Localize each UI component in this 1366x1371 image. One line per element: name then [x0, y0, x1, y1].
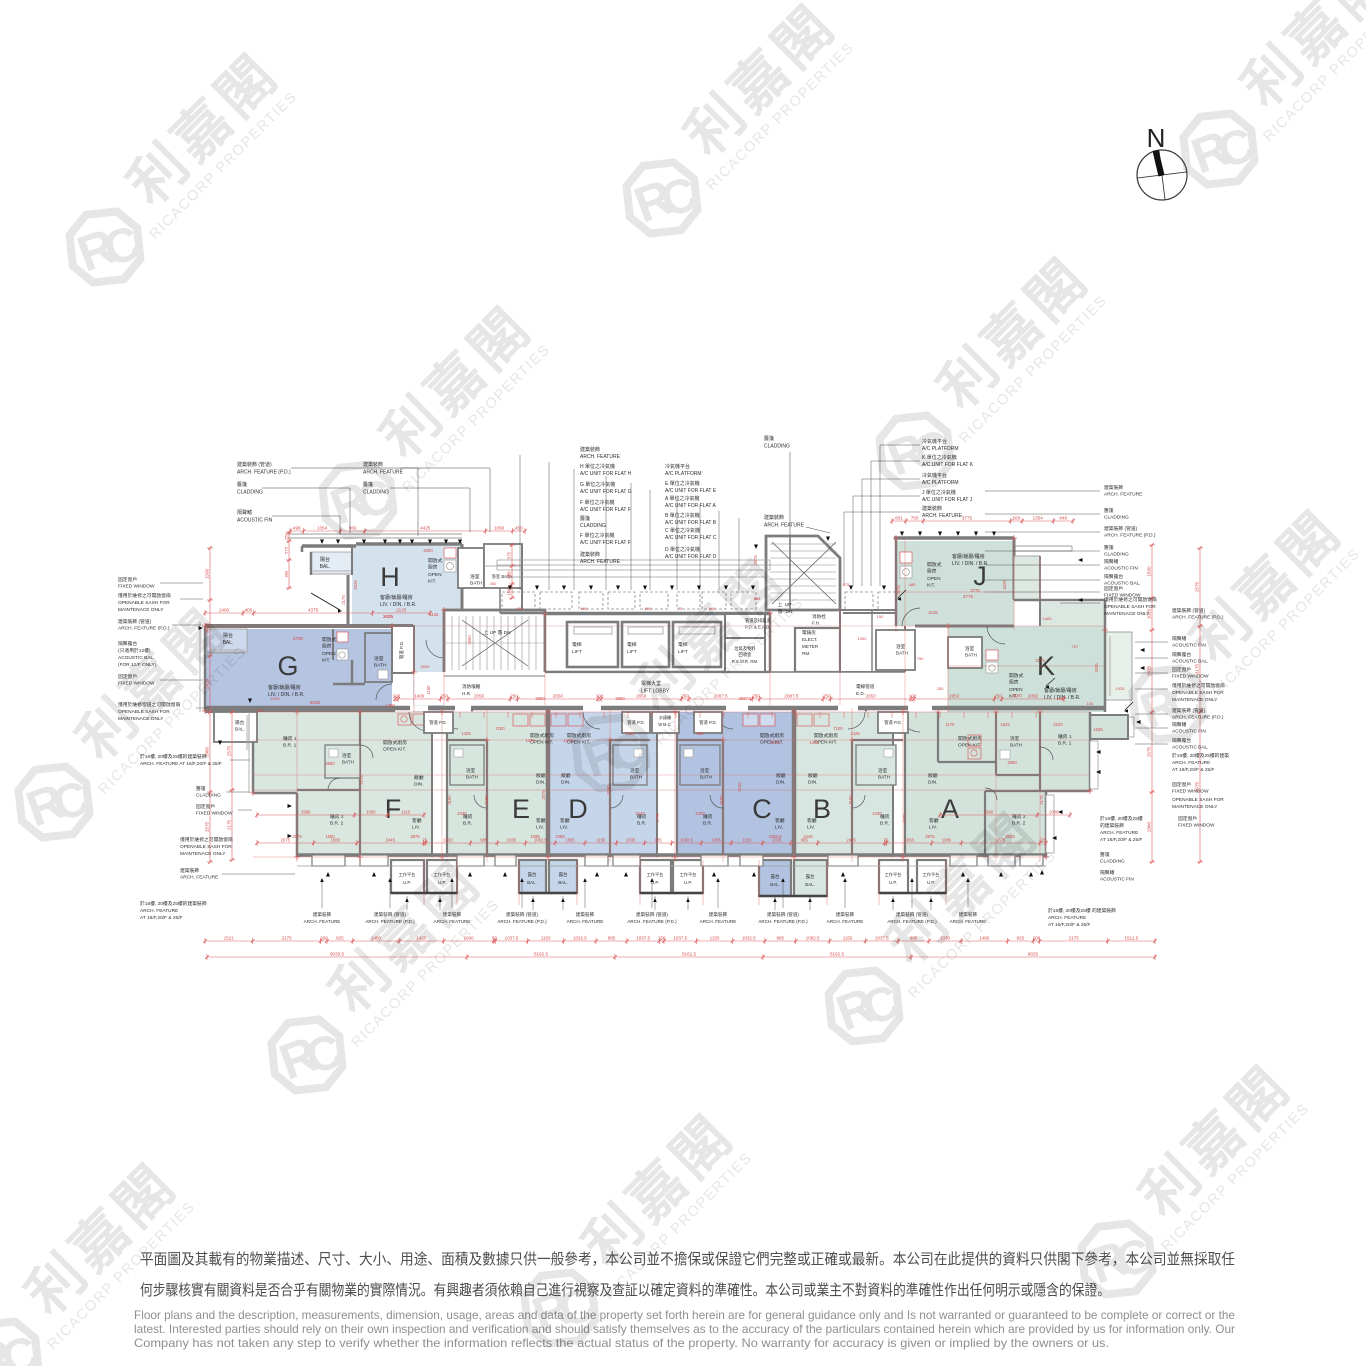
svg-text:1475: 1475: [809, 740, 819, 745]
svg-text:2175: 2175: [1069, 936, 1080, 941]
svg-text:BAL.: BAL.: [770, 882, 780, 887]
svg-text:ARCH. FEATURE (P.D.): ARCH. FEATURE (P.D.): [497, 919, 547, 924]
svg-text:A/C UNIT FOR FLAT E: A/C UNIT FOR FLAT E: [665, 488, 717, 494]
svg-text:1035: 1035: [626, 838, 636, 843]
svg-text:廚房: 廚房: [1009, 679, 1019, 686]
svg-text:ARCH. FEATURE: ARCH. FEATURE: [567, 919, 604, 924]
svg-text:FIXED WINDOW: FIXED WINDOW: [196, 811, 233, 817]
svg-text:2775: 2775: [902, 813, 907, 823]
svg-text:LIV.: LIV.: [412, 825, 420, 831]
svg-text:1032.5: 1032.5: [742, 936, 756, 941]
svg-text:2650: 2650: [535, 696, 545, 701]
svg-text:250: 250: [937, 686, 944, 691]
svg-text:3425: 3425: [1002, 580, 1007, 590]
svg-text:1000: 1000: [1049, 810, 1059, 815]
svg-text:1082.5: 1082.5: [680, 838, 693, 843]
svg-text:METER: METER: [802, 644, 819, 649]
svg-text:客廳: 客廳: [412, 817, 422, 824]
svg-text:BAL.: BAL.: [805, 882, 815, 887]
svg-text:簷篷: 簷篷: [237, 481, 247, 488]
svg-text:ARCH. FEATURE: ARCH. FEATURE: [580, 454, 621, 460]
svg-text:1082.5: 1082.5: [806, 936, 820, 941]
svg-text:A: A: [941, 794, 959, 824]
svg-text:DIN.: DIN.: [808, 780, 818, 786]
svg-text:2430: 2430: [635, 811, 645, 816]
svg-text:B.R. 1: B.R. 1: [1058, 741, 1072, 747]
svg-text:浴室: 浴室: [878, 767, 888, 774]
svg-text:B 單位之冷氣機: B 單位之冷氣機: [665, 512, 700, 519]
svg-text:575: 575: [507, 551, 512, 559]
svg-text:2425: 2425: [383, 614, 393, 619]
svg-text:3425: 3425: [353, 580, 358, 590]
svg-text:OPENABLE SASH FOR: OPENABLE SASH FOR: [180, 844, 232, 850]
svg-text:KIT.: KIT.: [927, 583, 935, 589]
svg-text:6025: 6025: [310, 700, 321, 705]
svg-text:工作平台: 工作平台: [885, 871, 902, 878]
svg-text:Floor plans and the descriptio: Floor plans and the description, measure…: [134, 1309, 1235, 1322]
svg-text:FIXED WINDOW: FIXED WINDOW: [1172, 789, 1209, 795]
svg-text:A/C UNIT FOR FLAT A: A/C UNIT FOR FLAT A: [665, 503, 717, 509]
svg-text:2430: 2430: [872, 811, 882, 816]
svg-text:1025: 1025: [1116, 686, 1126, 691]
svg-text:J 單位之冷氣機: J 單位之冷氣機: [922, 489, 956, 496]
svg-text:250: 250: [752, 694, 760, 699]
svg-text:2960: 2960: [1007, 760, 1017, 765]
svg-text:50: 50: [492, 936, 498, 941]
svg-text:985: 985: [777, 936, 785, 941]
svg-text:客廳: 客廳: [929, 817, 939, 824]
svg-text:2220: 2220: [1053, 722, 1063, 727]
svg-text:CLADDING: CLADDING: [580, 523, 606, 529]
svg-text:ACOUSTIC FIN: ACOUSTIC FIN: [237, 518, 273, 524]
svg-text:於16樓, 20樓及25樓 的建築裝飾: 於16樓, 20樓及25樓 的建築裝飾: [1048, 907, 1116, 914]
svg-text:DIN.: DIN.: [561, 780, 571, 786]
svg-text:1400: 1400: [219, 608, 230, 613]
svg-text:客廳/飯廳/睡房: 客廳/飯廳/睡房: [952, 553, 985, 560]
svg-text:5162.5: 5162.5: [682, 952, 696, 957]
svg-text:2430: 2430: [695, 811, 705, 816]
svg-text:ARCH. FEATURE AT 16/F,20/F & 2: ARCH. FEATURE AT 16/F,20/F & 25/F: [140, 761, 222, 767]
svg-text:2575: 2575: [227, 745, 232, 756]
svg-text:管道 P.D.: 管道 P.D.: [398, 641, 405, 659]
svg-text:KIT.: KIT.: [322, 658, 330, 664]
svg-text:ARCH. FEATURE: ARCH. FEATURE: [1100, 830, 1138, 836]
svg-text:ARCH. FEATURE: ARCH. FEATURE: [922, 513, 963, 519]
svg-text:2445: 2445: [803, 834, 813, 839]
svg-text:固定窗戶: 固定窗戶: [1178, 815, 1197, 822]
svg-text:建築裝飾: 建築裝飾: [1104, 484, 1123, 491]
svg-text:250: 250: [994, 694, 1002, 699]
svg-text:ACOUSTIC BAL.: ACOUSTIC BAL.: [1172, 659, 1209, 665]
svg-text:LIV.: LIV.: [536, 825, 544, 831]
svg-text:G: G: [277, 651, 298, 681]
svg-text:2087.5: 2087.5: [739, 696, 752, 701]
svg-text:225: 225: [257, 708, 264, 713]
svg-text:KIT.: KIT.: [428, 579, 436, 585]
svg-text:ARCH. FEATURE: ARCH. FEATURE: [764, 523, 805, 529]
svg-text:OPENABLE SASH FOR: OPENABLE SASH FOR: [118, 600, 170, 606]
svg-text:露台: 露台: [806, 873, 815, 880]
svg-text:客廳/飯廳/睡房: 客廳/飯廳/睡房: [268, 684, 301, 691]
svg-text:隔聲露台: 隔聲露台: [1172, 651, 1191, 658]
svg-text:飯廳: 飯廳: [536, 772, 546, 779]
svg-text:1400: 1400: [385, 703, 395, 708]
svg-text:2960: 2960: [1147, 821, 1152, 832]
svg-text:BATH: BATH: [896, 651, 908, 656]
svg-text:2225: 2225: [271, 696, 281, 701]
svg-text:消防栓: 消防栓: [812, 613, 826, 620]
svg-text:1085: 1085: [555, 834, 565, 839]
svg-text:1050: 1050: [858, 636, 868, 641]
svg-text:2430: 2430: [457, 811, 467, 816]
svg-text:1150: 1150: [596, 838, 606, 843]
svg-text:DIN.: DIN.: [414, 782, 424, 788]
svg-text:B.R. 1: B.R. 1: [283, 743, 297, 749]
svg-text:1400: 1400: [414, 694, 425, 699]
svg-text:工作平台: 工作平台: [647, 871, 664, 878]
svg-text:1115: 1115: [401, 810, 410, 815]
svg-text:BAL.: BAL.: [558, 880, 568, 885]
svg-text:ARCH. FEATURE (P.D.): ARCH. FEATURE (P.D.): [627, 919, 677, 924]
svg-text:簷篷: 簷篷: [1104, 507, 1114, 514]
svg-text:2675: 2675: [896, 585, 901, 595]
svg-text:露台: 露台: [528, 871, 537, 878]
svg-text:1630: 1630: [443, 838, 453, 843]
svg-text:BATH: BATH: [700, 775, 712, 780]
svg-text:75: 75: [678, 606, 683, 611]
svg-text:1475: 1475: [525, 738, 535, 743]
svg-text:CLADDING: CLADDING: [196, 793, 221, 799]
svg-text:飯廳: 飯廳: [928, 772, 938, 779]
svg-text:浴室: 浴室: [896, 643, 906, 650]
svg-text:5162.5: 5162.5: [534, 952, 548, 957]
svg-text:簷篷: 簷篷: [580, 515, 590, 522]
svg-text:隔聲露台: 隔聲露台: [118, 640, 137, 647]
svg-text:Company has not taken any step: Company has not taken any step to verify…: [134, 1337, 1109, 1350]
svg-text:於16樓, 20樓及25樓: 於16樓, 20樓及25樓: [1100, 815, 1143, 822]
svg-text:U.P.: U.P.: [684, 880, 692, 885]
svg-text:1095: 1095: [565, 838, 575, 843]
svg-text:A/C UNIT FOR FLAT C: A/C UNIT FOR FLAT C: [665, 535, 717, 541]
svg-text:MAINTENACE ONLY: MAINTENACE ONLY: [1104, 611, 1150, 617]
svg-text:DIN.: DIN.: [928, 780, 938, 786]
svg-text:平面圖及其載有的物業描述、尺寸、大小、用途、面積及數據只供一: 平面圖及其載有的物業描述、尺寸、大小、用途、面積及數據只供一般參考，本公司並不擔…: [140, 1250, 1235, 1268]
svg-text:睡房 1: 睡房 1: [283, 735, 297, 742]
svg-text:E: E: [512, 794, 530, 824]
svg-text:僅用於維修之可開啟窗扇: 僅用於維修之可開啟窗扇: [1104, 596, 1157, 603]
svg-text:1354: 1354: [317, 526, 328, 531]
svg-text:OPEN: OPEN: [927, 576, 941, 582]
svg-text:AT 16/F,20/F & 25/F: AT 16/F,20/F & 25/F: [140, 915, 183, 921]
svg-text:2575: 2575: [1147, 746, 1152, 757]
svg-text:450: 450: [515, 526, 523, 531]
svg-text:AT 16/F,20/F & 25/F: AT 16/F,20/F & 25/F: [1100, 837, 1143, 843]
svg-text:B.R.: B.R.: [463, 821, 472, 827]
svg-text:75: 75: [422, 838, 427, 843]
svg-text:OPEN KIT.: OPEN KIT.: [383, 747, 406, 753]
svg-text:150: 150: [284, 532, 289, 539]
svg-text:浴室: 浴室: [374, 655, 384, 662]
svg-text:建築裝飾: 建築裝飾: [580, 446, 600, 453]
svg-text:建築裝飾 (管道): 建築裝飾 (管道): [1104, 525, 1138, 532]
svg-text:2775: 2775: [655, 813, 660, 823]
svg-text:650: 650: [517, 606, 524, 611]
svg-text:100: 100: [1057, 696, 1064, 701]
svg-text:1035: 1035: [507, 838, 517, 843]
svg-text:888: 888: [507, 571, 512, 579]
svg-text:A 單位之冷氣機: A 單位之冷氣機: [665, 495, 699, 502]
svg-text:1175: 1175: [945, 722, 955, 727]
svg-text:飯廳: 飯廳: [776, 772, 786, 779]
svg-text:FIXED WINDOW: FIXED WINDOW: [118, 584, 155, 590]
svg-text:2575: 2575: [541, 790, 546, 800]
svg-text:ACOUSTIC BAL.: ACOUSTIC BAL.: [1172, 745, 1209, 751]
svg-text:A/C UNIT FOR FLAT D: A/C UNIT FOR FLAT D: [665, 554, 717, 560]
svg-text:2875: 2875: [925, 834, 935, 839]
svg-text:ELECT.: ELECT.: [802, 637, 818, 642]
svg-text:CLADDING: CLADDING: [1104, 552, 1129, 558]
svg-text:上 UP 落 DN: 上 UP 落 DN: [483, 629, 511, 636]
svg-text:固定窗戶: 固定窗戶: [1172, 781, 1191, 788]
svg-text:簷篷: 簷篷: [764, 435, 774, 442]
svg-text:LIFT: LIFT: [572, 649, 582, 655]
svg-text:1150: 1150: [742, 838, 752, 843]
svg-text:1512.5: 1512.5: [1124, 936, 1138, 941]
svg-text:開放式: 開放式: [927, 561, 942, 568]
svg-text:於16樓, 20樓及25樓的建築: 於16樓, 20樓及25樓的建築: [1172, 752, 1229, 759]
svg-text:1500: 1500: [205, 568, 210, 579]
svg-text:CLADDING: CLADDING: [1104, 515, 1129, 521]
svg-text:建築裝飾 (管道): 建築裝飾 (管道): [237, 461, 272, 468]
svg-text:固定窗戶: 固定窗戶: [1104, 585, 1123, 592]
svg-text:的建築裝飾: 的建築裝飾: [1100, 822, 1124, 829]
svg-text:2445: 2445: [386, 838, 396, 843]
svg-text:OPENABLE SASH FOR: OPENABLE SASH FOR: [1104, 604, 1156, 610]
svg-text:開放式廚房: 開放式廚房: [760, 732, 784, 739]
svg-text:LIV.: LIV.: [807, 825, 815, 831]
svg-text:D: D: [568, 794, 588, 824]
svg-text:浴室: 浴室: [965, 645, 975, 652]
svg-text:7100: 7100: [833, 726, 843, 731]
svg-text:電錶房: 電錶房: [802, 629, 816, 636]
svg-text:3175: 3175: [1195, 663, 1200, 674]
svg-text:1032.5: 1032.5: [573, 936, 587, 941]
svg-text:150: 150: [877, 614, 884, 619]
svg-text:1650: 1650: [905, 838, 915, 843]
svg-text:1037.5: 1037.5: [636, 936, 650, 941]
svg-text:MAINTENACE ONLY: MAINTENACE ONLY: [180, 851, 226, 857]
svg-text:BATH: BATH: [374, 663, 387, 669]
svg-text:隔聲露台: 隔聲露台: [1104, 573, 1123, 580]
svg-text:100: 100: [909, 694, 917, 699]
svg-text:1638: 1638: [1093, 727, 1103, 732]
svg-text:985: 985: [608, 936, 616, 941]
svg-text:DIN.: DIN.: [776, 780, 786, 786]
svg-text:2650: 2650: [553, 694, 564, 699]
svg-text:D 單位之冷氣機: D 單位之冷氣機: [665, 546, 700, 553]
svg-text:LIV.: LIV.: [929, 825, 937, 831]
svg-text:1425: 1425: [461, 731, 471, 736]
svg-text:F 單位之冷氣機: F 單位之冷氣機: [580, 499, 614, 506]
svg-text:2650: 2650: [866, 694, 877, 699]
svg-text:250: 250: [510, 694, 518, 699]
svg-text:7100: 7100: [495, 726, 505, 731]
svg-text:2650: 2650: [467, 635, 472, 645]
svg-text:2175: 2175: [359, 775, 364, 785]
svg-text:AT 16/F,20/F & 25/F: AT 16/F,20/F & 25/F: [1048, 922, 1091, 928]
svg-text:BAL.: BAL.: [320, 564, 331, 570]
svg-text:1095: 1095: [530, 834, 540, 839]
svg-text:ARCH. FEATURE: ARCH. FEATURE: [827, 919, 864, 924]
svg-text:1037.5: 1037.5: [673, 936, 687, 941]
svg-text:1483: 1483: [1043, 616, 1053, 621]
svg-text:B.R.: B.R.: [637, 821, 646, 827]
svg-text:1475: 1475: [770, 740, 780, 745]
svg-text:CLADDING: CLADDING: [764, 444, 790, 450]
svg-text:A/C UNIT FOR FLAT F: A/C UNIT FOR FLAT F: [580, 540, 631, 546]
svg-text:U.P.: U.P.: [889, 880, 897, 885]
svg-text:200: 200: [1033, 936, 1041, 941]
svg-text:U.P.: U.P.: [403, 880, 411, 885]
svg-text:簷篷: 簷篷: [1104, 544, 1114, 551]
svg-text:E.D.: E.D.: [856, 691, 865, 696]
svg-text:廚房: 廚房: [927, 568, 937, 575]
svg-text:建築裝飾 (管道): 建築裝飾 (管道): [767, 911, 799, 918]
svg-text:100: 100: [1087, 701, 1094, 706]
svg-text:575: 575: [284, 546, 289, 553]
svg-text:A/C PLATFORM: A/C PLATFORM: [665, 471, 702, 477]
svg-text:498: 498: [293, 526, 301, 531]
svg-text:2875: 2875: [410, 834, 420, 839]
svg-text:3700: 3700: [293, 636, 304, 641]
svg-text:建築裝飾 (管道): 建築裝飾 (管道): [506, 911, 538, 918]
svg-text:F 單位之冷氣機: F 單位之冷氣機: [580, 532, 614, 539]
svg-text:2125: 2125: [396, 608, 407, 613]
svg-text:建築裝飾: 建築裝飾: [709, 911, 728, 918]
svg-text:冷氣機平台: 冷氣機平台: [665, 463, 690, 470]
svg-text:建築裝飾 (管道): 建築裝飾 (管道): [118, 618, 152, 625]
svg-text:G 單位之冷氣機: G 單位之冷氣機: [580, 481, 615, 488]
svg-text:陽台: 陽台: [235, 719, 245, 726]
svg-text:2125: 2125: [928, 610, 938, 615]
svg-text:2960: 2960: [301, 810, 311, 815]
svg-text:ARCH. FEATURE: ARCH. FEATURE: [180, 875, 218, 881]
svg-text:陽台: 陽台: [320, 556, 330, 563]
svg-text:825: 825: [336, 936, 344, 941]
svg-text:3775: 3775: [963, 594, 974, 599]
svg-text:F: F: [385, 794, 402, 824]
svg-text:H 單位之冷氣機: H 單位之冷氣機: [580, 463, 615, 470]
svg-text:2575: 2575: [205, 821, 210, 832]
svg-text:僅用於維修之可開啟窗扇: 僅用於維修之可開啟窗扇: [118, 592, 171, 599]
svg-text:ARCH. FEATURE: ARCH. FEATURE: [580, 559, 621, 565]
svg-text:A/C UNIT FOR FLAT B: A/C UNIT FOR FLAT B: [665, 520, 717, 526]
svg-text:601: 601: [895, 516, 903, 521]
svg-text:工作平台: 工作平台: [399, 871, 416, 878]
svg-text:建築裝飾: 建築裝飾: [313, 911, 332, 918]
svg-text:6100: 6100: [1012, 693, 1022, 698]
svg-text:2650: 2650: [421, 664, 431, 669]
svg-text:工作平台: 工作平台: [680, 871, 697, 878]
svg-text:1150: 1150: [710, 936, 720, 941]
svg-text:825: 825: [1017, 936, 1025, 941]
svg-text:浴室: 浴室: [466, 767, 476, 774]
svg-text:飯廳: 飯廳: [808, 772, 818, 779]
svg-text:650: 650: [645, 606, 652, 611]
svg-text:OPENABLE SASH FOR: OPENABLE SASH FOR: [1172, 797, 1224, 803]
svg-text:450: 450: [490, 581, 497, 586]
svg-text:電線管道: 電線管道: [856, 683, 875, 690]
svg-text:9025: 9025: [1028, 952, 1039, 957]
svg-text:客廳/飯廳/睡房: 客廳/飯廳/睡房: [380, 594, 413, 601]
svg-text:650: 650: [581, 606, 588, 611]
svg-text:BAL.: BAL.: [527, 880, 537, 885]
svg-text:消防喉轆: 消防喉轆: [462, 683, 481, 690]
svg-text:3150: 3150: [848, 795, 853, 805]
svg-text:B.R.: B.R.: [703, 821, 712, 827]
svg-text:2175: 2175: [227, 819, 232, 830]
svg-text:LIV.: LIV.: [560, 825, 568, 831]
svg-text:3775: 3775: [1035, 658, 1045, 663]
svg-text:1125: 1125: [429, 612, 439, 617]
svg-text:開放式廚房: 開放式廚房: [814, 732, 838, 739]
svg-text:DIN.: DIN.: [536, 780, 546, 786]
svg-text:2087.5: 2087.5: [784, 694, 798, 699]
svg-text:2482.5: 2482.5: [769, 834, 782, 839]
svg-text:MAINTENACE ONLY: MAINTENACE ONLY: [118, 607, 164, 613]
svg-text:985: 985: [655, 838, 663, 843]
svg-text:2650: 2650: [615, 696, 625, 701]
svg-text:1354: 1354: [1033, 516, 1044, 521]
svg-text:LIV.: LIV.: [775, 825, 783, 831]
svg-text:BATH: BATH: [470, 581, 483, 587]
svg-text:電梯: 電梯: [572, 641, 582, 648]
svg-text:B.R. 2: B.R. 2: [330, 821, 344, 827]
svg-text:latest. Interested parties sho: latest. Interested parties should rely o…: [134, 1323, 1235, 1336]
svg-text:浴室: 浴室: [470, 573, 480, 580]
svg-text:1150: 1150: [541, 936, 551, 941]
svg-text:2050: 2050: [474, 694, 485, 699]
svg-text:客廳: 客廳: [775, 817, 785, 824]
svg-text:1080: 1080: [942, 838, 952, 843]
svg-text:管道 P.D.: 管道 P.D.: [699, 719, 717, 726]
svg-text:FIXED WINDOW: FIXED WINDOW: [1178, 823, 1215, 829]
svg-text:B.R.: B.R.: [880, 821, 889, 827]
svg-text:僅用於維修之可開啟窗扇: 僅用於維修之可開啟窗扇: [180, 836, 233, 843]
svg-text:ARCH. FEATURE (P.D.): ARCH. FEATURE (P.D.): [758, 919, 808, 924]
svg-text:廚房: 廚房: [428, 564, 438, 571]
svg-text:1521: 1521: [224, 936, 235, 941]
svg-text:C 單位之冷氣機: C 單位之冷氣機: [665, 527, 700, 534]
svg-text:BATH: BATH: [1010, 743, 1022, 748]
svg-text:1150: 1150: [426, 685, 431, 695]
svg-text:ARCH. FEATURE: ARCH. FEATURE: [700, 919, 737, 924]
svg-text:OPEN: OPEN: [322, 651, 336, 657]
svg-text:管道 P.D.: 管道 P.D.: [884, 719, 902, 726]
svg-text:75: 75: [883, 838, 888, 843]
svg-text:BATH: BATH: [466, 775, 478, 780]
svg-text:固定窗戶: 固定窗戶: [196, 803, 215, 810]
svg-text:H.R.: H.R.: [462, 691, 471, 696]
svg-text:2445: 2445: [847, 838, 857, 843]
svg-text:ARCH. FEATURE: ARCH. FEATURE: [1048, 915, 1086, 921]
svg-text:3150: 3150: [447, 795, 452, 805]
svg-text:建築裝飾 (管道): 建築裝飾 (管道): [636, 911, 668, 918]
svg-text:1000: 1000: [366, 810, 376, 815]
svg-text:2175: 2175: [282, 936, 293, 941]
svg-text:F.H.: F.H.: [812, 621, 820, 626]
svg-text:575: 575: [843, 582, 850, 587]
